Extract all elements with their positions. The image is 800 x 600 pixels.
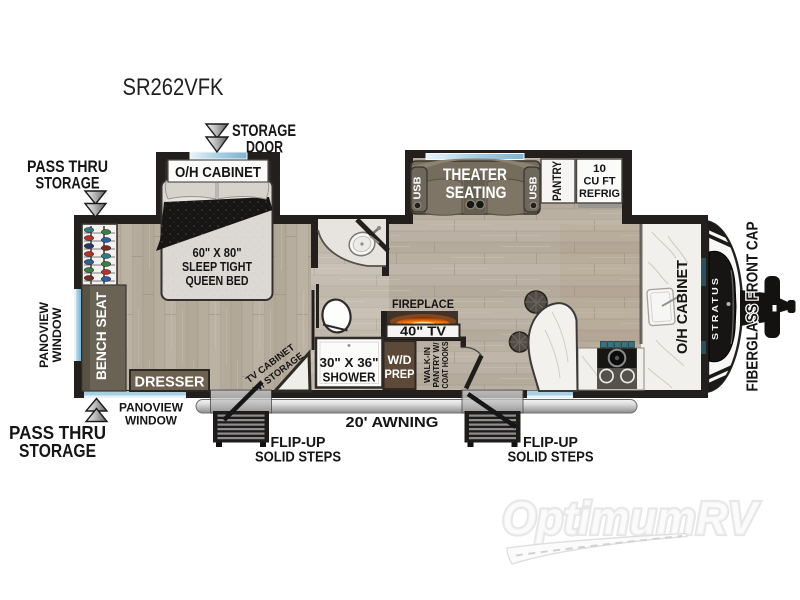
svg-text:20' AWNING: 20' AWNING (346, 415, 439, 431)
svg-text:COAT HOOKS: COAT HOOKS (440, 341, 450, 388)
svg-text:PANOVIEW: PANOVIEW (119, 403, 183, 415)
svg-text:PASS THRU: PASS THRU (27, 158, 108, 176)
svg-text:SR262VFK: SR262VFK (123, 74, 225, 101)
svg-text:FIREPLACE: FIREPLACE (392, 297, 454, 311)
svg-text:30" X 36": 30" X 36" (320, 356, 379, 370)
svg-text:REFRIG: REFRIG (579, 188, 620, 200)
svg-text:SOLID STEPS: SOLID STEPS (508, 450, 594, 466)
svg-text:USB: USB (529, 177, 540, 200)
svg-text:STORAGE: STORAGE (36, 175, 100, 193)
svg-text:STORAGE: STORAGE (19, 441, 96, 461)
svg-text:CU FT: CU FT (584, 176, 616, 188)
svg-text:WINDOW: WINDOW (125, 416, 177, 428)
svg-text:DOOR: DOOR (246, 139, 283, 157)
svg-text:STRATUS: STRATUS (711, 276, 720, 340)
svg-text:PASS THRU: PASS THRU (9, 423, 106, 443)
svg-text:SLEEP TIGHT: SLEEP TIGHT (182, 260, 252, 274)
svg-text:DRESSER: DRESSER (135, 374, 205, 391)
svg-text:PANTRY: PANTRY (552, 161, 564, 201)
svg-text:O/H CABINET: O/H CABINET (675, 260, 691, 354)
svg-text:40" TV: 40" TV (400, 324, 446, 339)
svg-text:BENCH SEAT: BENCH SEAT (93, 292, 109, 380)
svg-text:STORAGE: STORAGE (232, 122, 296, 140)
svg-text:USB: USB (413, 177, 424, 200)
svg-text:10: 10 (593, 163, 606, 175)
svg-text:FIBERGLASS FRONT CAP: FIBERGLASS FRONT CAP (745, 222, 762, 392)
svg-text:O/H CABINET: O/H CABINET (175, 165, 261, 181)
svg-text:60" X 80": 60" X 80" (193, 246, 242, 260)
svg-text:QUEEN BED: QUEEN BED (186, 274, 249, 288)
svg-text:PANOVIEW: PANOVIEW (39, 302, 51, 368)
svg-text:WINDOW: WINDOW (52, 307, 64, 362)
svg-text:SHOWER: SHOWER (323, 371, 376, 385)
svg-text:THEATER: THEATER (443, 165, 507, 184)
svg-text:SOLID STEPS: SOLID STEPS (255, 450, 341, 466)
svg-text:W/D: W/D (388, 355, 412, 367)
svg-text:PREP: PREP (385, 369, 415, 381)
svg-text:SEATING: SEATING (446, 183, 507, 202)
